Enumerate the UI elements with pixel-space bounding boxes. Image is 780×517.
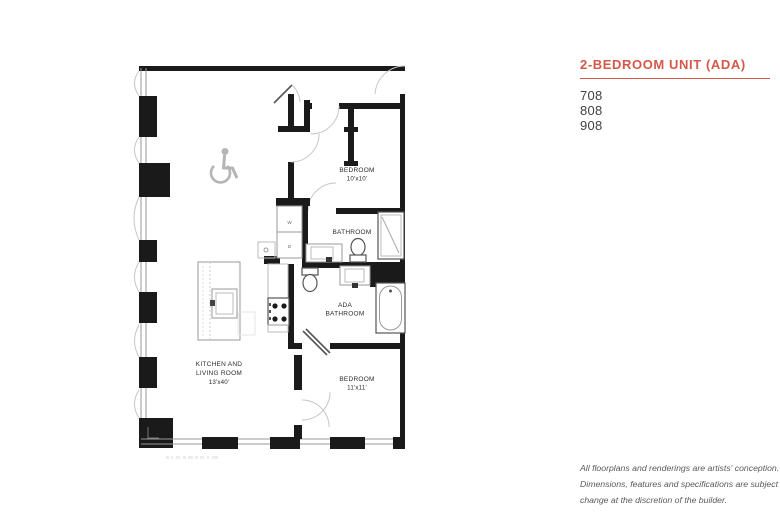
faucet [326,257,332,262]
toilet [351,239,365,256]
unit-number-1: 708 [580,88,770,103]
unit-number-3: 908 [580,118,770,133]
disclaimer-text: All floorplans and renderings are artist… [580,460,780,508]
watermark-marks [166,456,218,459]
ada-faucet [352,283,358,288]
wheelchair-icon [211,148,237,182]
bottom-window-wall [141,437,405,449]
stove [268,298,289,325]
bathroom-fixtures [306,212,404,262]
hall-door-arc [291,134,319,162]
unit-info-panel: 2-BEDROOM UNIT (ADA) 708 808 908 [580,57,770,133]
floorplan-page: W D [0,0,780,517]
page-title: 2-BEDROOM UNIT (ADA) [580,57,770,79]
bathroom-door-arc [308,183,336,211]
bedroom2-dims: 11'x11' [347,385,367,392]
bedroom1-label: BEDROOM [339,167,374,174]
washer-dryer: W D [277,206,302,258]
kitchen-label-line2: LIVING ROOM [196,370,242,377]
bedroom1-dims: 10'x10' [347,176,368,183]
kitchen-dims: 13'x40' [209,379,230,386]
bedroom1-door-arc [311,106,339,134]
ada-door-leaf [303,331,327,355]
washer-label: W [287,220,292,225]
ada-bathroom-label-line2: BATHROOM [325,311,364,318]
ada-bathroom-label-line1: ADA [338,302,353,309]
disclaimer-line-3: change at the discretion of the builder. [580,492,780,508]
bedroom2-label: BEDROOM [339,376,374,383]
kitchen-label-line1: KITCHEN AND [196,361,243,368]
kitchen-counter [268,264,288,298]
bedroom2-door-arc [302,392,330,420]
unit-number-2: 808 [580,103,770,118]
disclaimer-line-2: Dimensions, features and specifications … [580,476,780,492]
disclaimer-line-1: All floorplans and renderings are artist… [580,460,780,476]
kitchen-fixtures [198,242,289,340]
bathroom-label: BATHROOM [332,229,371,236]
left-window-wall [134,68,173,448]
